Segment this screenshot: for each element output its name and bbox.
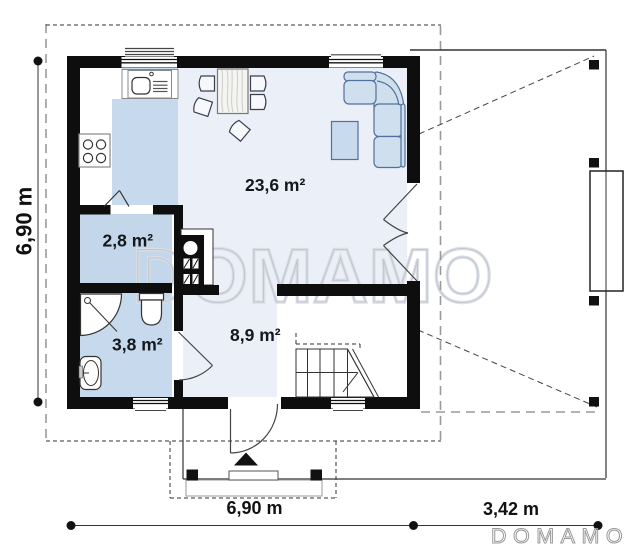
- svg-text:6,90 m: 6,90 m: [12, 187, 37, 256]
- svg-text:3,8 m²: 3,8 m²: [112, 335, 163, 355]
- svg-text:8,9 m²: 8,9 m²: [230, 325, 281, 345]
- svg-text:23,6 m²: 23,6 m²: [245, 175, 305, 195]
- svg-text:6,90 m: 6,90 m: [226, 498, 282, 518]
- svg-text:2,8 m²: 2,8 m²: [103, 231, 154, 251]
- svg-text:DOMAMO: DOMAMO: [491, 524, 629, 548]
- svg-text:3,42 m: 3,42 m: [483, 499, 539, 519]
